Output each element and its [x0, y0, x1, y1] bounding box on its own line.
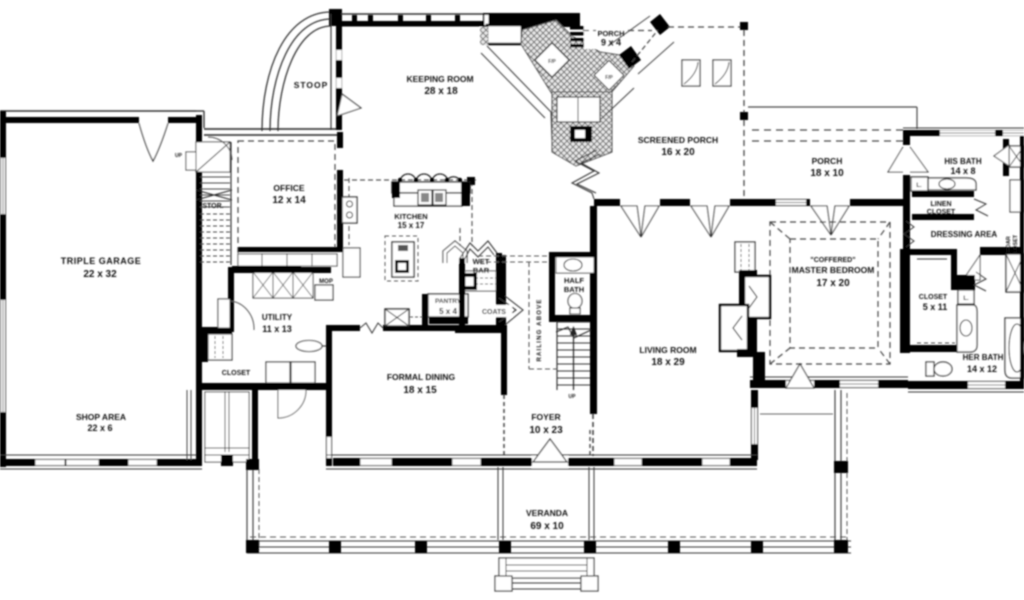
svg-text:UP: UP: [175, 153, 183, 159]
svg-text:BAR: BAR: [473, 266, 490, 275]
svg-text:11 x 13: 11 x 13: [262, 324, 292, 334]
svg-text:PANTRY: PANTRY: [435, 298, 462, 305]
svg-text:MOP: MOP: [319, 279, 333, 285]
svg-text:22 x 6: 22 x 6: [87, 423, 112, 433]
svg-text:18 x 29: 18 x 29: [651, 357, 685, 368]
svg-text:STOOP: STOOP: [294, 80, 329, 90]
svg-text:KEEPING ROOM: KEEPING ROOM: [406, 74, 473, 84]
svg-text:18 x 10: 18 x 10: [810, 168, 844, 179]
svg-text:SCREENED PORCH: SCREENED PORCH: [638, 135, 718, 145]
svg-text:F/P: F/P: [548, 59, 556, 65]
svg-text:CLOSET: CLOSET: [927, 209, 956, 216]
svg-text:12 x 14: 12 x 14: [272, 195, 306, 206]
svg-text:15 x 17: 15 x 17: [398, 221, 425, 230]
svg-text:STOR.: STOR.: [202, 203, 223, 210]
svg-text:28 x 18: 28 x 18: [424, 86, 458, 97]
svg-text:DRESSING AREA: DRESSING AREA: [931, 230, 998, 239]
svg-text:OFFICE: OFFICE: [273, 183, 304, 193]
svg-text:CEDAR: CEDAR: [1006, 236, 1012, 256]
svg-text:LIVING ROOM: LIVING ROOM: [639, 345, 696, 355]
svg-text:5 x 4: 5 x 4: [439, 307, 457, 316]
svg-text:18 x 15: 18 x 15: [403, 385, 437, 396]
svg-text:L.: L.: [963, 296, 969, 302]
svg-text:VERANDA: VERANDA: [526, 508, 568, 518]
svg-text:MASTER BEDROOM: MASTER BEDROOM: [792, 265, 875, 275]
svg-text:10 x 23: 10 x 23: [529, 425, 563, 436]
svg-text:17 x 20: 17 x 20: [816, 278, 850, 289]
svg-text:TRIPLE GARAGE: TRIPLE GARAGE: [61, 256, 142, 266]
svg-text:UP: UP: [569, 394, 577, 400]
svg-text:14 x 8: 14 x 8: [950, 166, 975, 176]
svg-text:F/P: F/P: [605, 75, 613, 81]
svg-text:5 x 11: 5 x 11: [923, 302, 948, 312]
svg-text:RAILING ABOVE: RAILING ABOVE: [537, 298, 543, 361]
svg-text:HER BATH: HER BATH: [963, 353, 1004, 362]
svg-text:9 x 4: 9 x 4: [601, 38, 621, 48]
svg-text:PORCH: PORCH: [812, 156, 843, 166]
svg-text:"COFFERED": "COFFERED": [810, 257, 855, 264]
svg-text:UTILITY: UTILITY: [262, 313, 293, 322]
svg-text:LINEN: LINEN: [931, 201, 952, 208]
svg-text:FORMAL DINING: FORMAL DINING: [387, 372, 456, 382]
svg-text:KITCHEN: KITCHEN: [394, 212, 427, 221]
svg-text:SHOP AREA: SHOP AREA: [76, 412, 126, 422]
svg-text:BATH: BATH: [564, 285, 584, 294]
svg-text:L.: L.: [916, 183, 922, 189]
svg-text:HALF: HALF: [564, 276, 584, 285]
svg-text:COATS: COATS: [482, 309, 506, 316]
svg-text:69 x 10: 69 x 10: [530, 521, 564, 532]
svg-text:FOYER: FOYER: [531, 412, 560, 422]
svg-text:14 x 12: 14 x 12: [967, 364, 997, 374]
svg-text:HIS BATH: HIS BATH: [944, 157, 981, 166]
svg-text:CLOSET: CLOSET: [222, 370, 251, 377]
svg-text:CLOSET: CLOSET: [919, 294, 948, 301]
svg-text:22 x 32: 22 x 32: [83, 269, 117, 280]
svg-text:16 x 20: 16 x 20: [661, 147, 695, 158]
